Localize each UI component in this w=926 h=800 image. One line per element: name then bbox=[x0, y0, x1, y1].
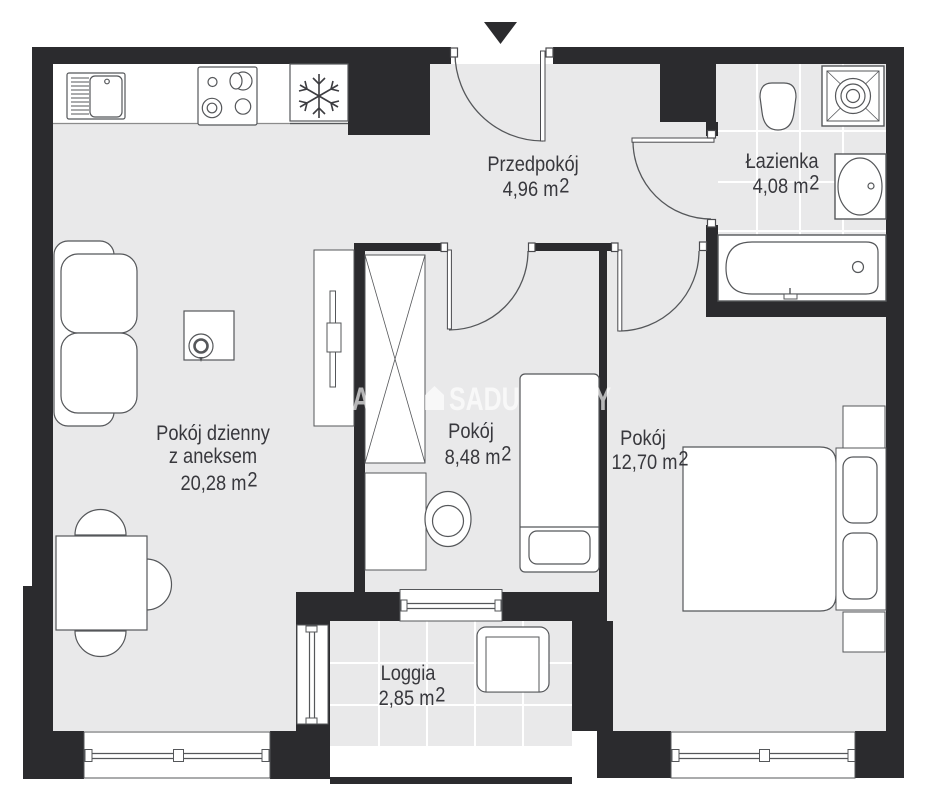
svg-text:20,28 m2: 20,28 m2 bbox=[180, 468, 257, 495]
svg-text:SADU: SADU bbox=[449, 382, 520, 418]
svg-text:Loggia: Loggia bbox=[381, 662, 436, 685]
svg-text:Przedpokój: Przedpokój bbox=[487, 153, 578, 176]
svg-text:Pokój dzienny: Pokój dzienny bbox=[156, 422, 270, 445]
svg-text:8,48 m2: 8,48 m2 bbox=[445, 442, 512, 469]
svg-text:Łazienka: Łazienka bbox=[745, 150, 818, 173]
svg-text:Pokój: Pokój bbox=[620, 427, 666, 450]
svg-text:z aneksem: z aneksem bbox=[169, 445, 257, 468]
svg-text:Pokój: Pokój bbox=[448, 420, 494, 443]
svg-text:RSCY: RSCY bbox=[542, 382, 611, 418]
svg-text:12,70 m2: 12,70 m2 bbox=[611, 447, 688, 474]
svg-text:2,85 m2: 2,85 m2 bbox=[379, 683, 446, 710]
svg-text:4,96 m2: 4,96 m2 bbox=[503, 174, 570, 201]
svg-text:4,08 m2: 4,08 m2 bbox=[753, 171, 820, 198]
svg-text:A: A bbox=[352, 382, 370, 418]
